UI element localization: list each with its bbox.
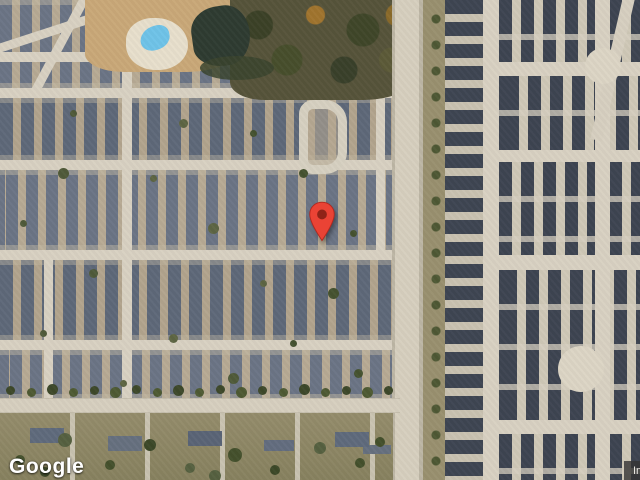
townhome-row <box>499 162 640 255</box>
median-green-strip <box>423 0 445 480</box>
tree-shadow <box>200 56 274 80</box>
townhome-column <box>445 0 483 480</box>
attribution-bar: Imagery ©2025 Airbus, Maxar Technologies… <box>624 461 640 480</box>
townhome-row <box>499 270 640 420</box>
grid-street <box>499 420 640 434</box>
rural-houses <box>30 428 64 443</box>
concrete-court <box>585 48 621 84</box>
townhome-grid <box>499 0 640 480</box>
google-logo[interactable]: Google <box>9 455 84 479</box>
street-vertical <box>376 88 385 250</box>
bottom-road <box>0 398 400 413</box>
map-canvas[interactable]: Google Imagery ©2025 Airbus, Maxar Techn… <box>0 0 640 480</box>
map-marker[interactable] <box>308 200 336 244</box>
street-horizontal <box>0 340 393 350</box>
street-vertical <box>122 52 132 400</box>
attribution-text: Imagery ©2025 Airbus, Maxar Technologies… <box>633 465 640 477</box>
townhome-row <box>499 76 640 150</box>
street-horizontal <box>0 250 393 260</box>
treeline <box>6 386 15 395</box>
location-pin-icon <box>308 200 336 244</box>
street-vertical <box>44 250 53 400</box>
residential-row <box>0 260 393 340</box>
residential-row <box>0 350 393 399</box>
grid-street <box>499 255 640 270</box>
tree-cluster <box>70 110 77 117</box>
roundabout <box>558 346 604 392</box>
street-vertical <box>483 0 499 480</box>
grid-street <box>499 150 640 162</box>
townhome-row <box>499 434 640 480</box>
culdesac-loop-street <box>299 100 347 174</box>
